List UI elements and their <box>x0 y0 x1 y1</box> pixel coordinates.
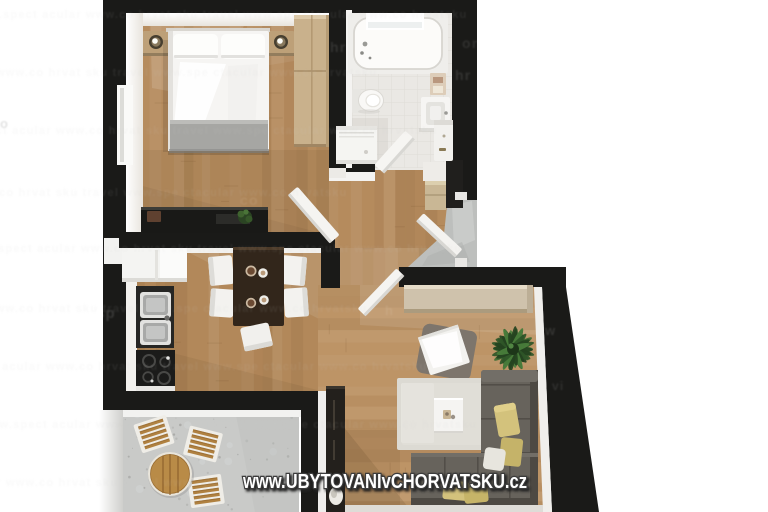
svg-text:h: h <box>385 303 394 318</box>
svg-text:hr: hr <box>330 39 346 55</box>
svg-text:www.UBYTOVANIvCHORVATSKU.cz: www.UBYTOVANIvCHORVATSKU.cz <box>242 471 527 493</box>
svg-text:co: co <box>240 192 259 208</box>
svg-text:hr: hr <box>455 67 471 83</box>
svg-text:on: on <box>462 35 482 51</box>
svg-text:sp: sp <box>96 305 116 322</box>
svg-text:www.spect acular www.co hrv: www.spect acular www.co hrvat sku travel… <box>0 67 377 79</box>
svg-text:www.spect acular www.co hrv: www.spect acular www.co hrvat sku travel… <box>0 303 367 315</box>
svg-text:www.spect acular www.co hrv: www.spect acular www.co hrvat sku travel… <box>0 125 437 137</box>
svg-text:www.spect acular www.co hrv: www.spect acular www.co hrvat sku travel… <box>0 187 347 199</box>
svg-text:w: w <box>544 323 556 338</box>
svg-text:vi: vi <box>552 379 564 393</box>
svg-text:www.spect acular www.co hrv: www.spect acular www.co hrvat sku travel… <box>0 419 477 431</box>
svg-text:www.spect acular www.co hrv: www.spect acular www.co hrvat sku travel… <box>0 9 467 21</box>
svg-text:o: o <box>0 116 9 131</box>
svg-text:www.spect acular www.co hrv: www.spect acular www.co hrvat sku travel… <box>0 361 427 373</box>
svg-text:www.spect acular www.co hrv: www.spect acular www.co hrvat sku travel… <box>0 243 462 255</box>
